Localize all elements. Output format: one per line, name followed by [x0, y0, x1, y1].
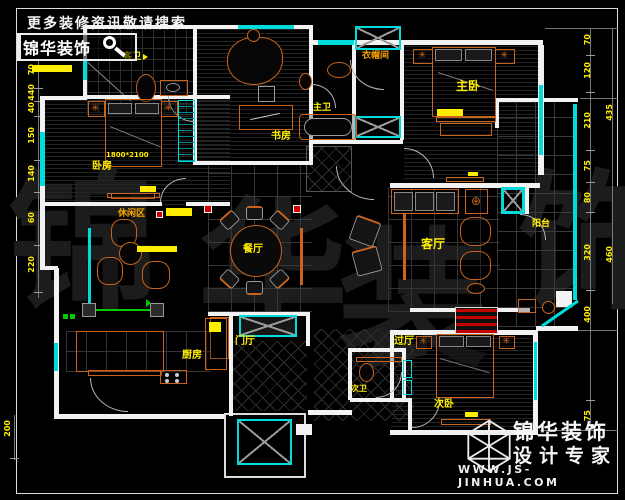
search-divider: [19, 35, 21, 59]
bathtub-basin: [304, 118, 352, 136]
wiring-arrow: [146, 299, 151, 307]
console-table: [111, 193, 155, 199]
toilet: [327, 62, 351, 78]
foyer-floor: [233, 341, 307, 411]
partition-glass: [88, 228, 91, 310]
dimension-value: 75: [583, 160, 592, 171]
balcony-glazing: [573, 104, 577, 300]
highlight-bar: [137, 246, 177, 252]
highlight-bar: [437, 109, 463, 116]
elevator-door: [296, 424, 312, 435]
sofa-cushion: [436, 192, 455, 211]
extension-line: [580, 98, 618, 99]
bed-bench: [436, 117, 496, 122]
dimension-value: 70: [27, 64, 36, 75]
dresser: [440, 123, 492, 136]
lamp-icon: ✳: [502, 337, 510, 347]
bedroom-wardrobe: [178, 100, 195, 162]
lamp-icon: ✳: [419, 337, 427, 347]
sofa-cushion: [415, 192, 434, 211]
column-marker: [293, 205, 301, 213]
lower-counter: [88, 370, 162, 376]
room-label-hall: 过厅: [394, 337, 414, 347]
room-label-balcony: 阳台: [532, 219, 550, 229]
window: [54, 343, 58, 371]
search-box[interactable]: 锦华装饰: [17, 33, 137, 61]
column-box: [501, 187, 525, 214]
pillow: [108, 103, 132, 114]
floor-lamp: [467, 283, 485, 294]
dimension-line: [590, 28, 591, 430]
burner-dots: [165, 373, 169, 377]
wall: [40, 206, 45, 268]
wall: [54, 414, 224, 419]
wall: [40, 100, 45, 132]
sofa-cushion: [394, 192, 413, 211]
dimension-line: [38, 60, 39, 298]
window: [83, 59, 87, 80]
radiator-unit: [455, 307, 498, 334]
column-marker: [204, 205, 212, 213]
bed-size-annotation: 1800*2100: [106, 150, 149, 160]
wiring-mark: [70, 314, 75, 319]
dining-chair: [246, 206, 263, 220]
dimension-value: 120: [583, 62, 592, 79]
label-arrow-icon: [143, 54, 148, 60]
dimension-value: 220: [27, 256, 36, 273]
wiring-mark: [63, 314, 68, 319]
washer: [403, 360, 412, 378]
headboard: [466, 336, 491, 347]
search-icon[interactable]: [103, 36, 116, 49]
armchair: [97, 257, 123, 285]
dimension-total: 460: [605, 246, 614, 263]
desk: [239, 105, 293, 130]
headboard: [435, 49, 462, 61]
lamp-icon: ✳: [91, 104, 99, 114]
armchair: [142, 261, 170, 289]
lamp-icon: ✳: [500, 51, 508, 61]
fridge-highlight: [209, 322, 221, 332]
room-label-foyer: 门厅: [235, 337, 255, 347]
wiring-line: [96, 309, 154, 311]
shower-box: [403, 380, 412, 395]
dim-tick: [10, 458, 19, 459]
shelf-decor: [468, 172, 478, 176]
dim-tick: [586, 290, 595, 291]
plant-pot: [542, 301, 555, 314]
piano-stool: [247, 29, 260, 42]
dimension-total: 435: [605, 104, 614, 121]
wash-basin: [518, 299, 536, 313]
window: [40, 132, 45, 186]
bath-counter: [356, 357, 402, 362]
room-label-leisure: 休闲区: [118, 209, 145, 219]
cad-floorplan-canvas: 锦 华 装 饰: [0, 0, 625, 500]
highlight-bar: [166, 208, 192, 216]
room-label-second-bedroom: 次卧: [434, 400, 454, 410]
dimension-line: [14, 415, 15, 460]
toilet: [359, 363, 374, 382]
dimension-value: 200: [3, 420, 12, 437]
room-label-bedroom: 卧房: [92, 162, 112, 172]
dimension-value: 70: [583, 34, 592, 45]
lamp-icon: ✳: [164, 104, 172, 114]
room-label-master-bath: 主卫: [313, 103, 331, 113]
lamp-icon: ⊕: [471, 196, 481, 206]
toilet: [136, 74, 156, 102]
entry-shaft: [239, 315, 297, 337]
dimension-value: 140: [27, 165, 36, 182]
dim-tick: [586, 92, 595, 93]
dim-tick: [34, 292, 43, 293]
highlight-bar: [465, 412, 478, 417]
gas-stove: [160, 370, 187, 384]
cloakroom-wardrobe: [355, 116, 401, 138]
brand-website: WWW.JS-JINHUA.COM: [458, 463, 625, 489]
room-label-dining: 餐厅: [243, 245, 263, 255]
extension-line: [545, 28, 618, 29]
dimension-value: 210: [583, 112, 592, 129]
dim-tick: [586, 182, 595, 183]
chair: [258, 86, 275, 102]
highlight-bar: [32, 65, 72, 72]
column-marker: [156, 211, 163, 218]
kitchen-counter: [76, 331, 164, 372]
wall: [348, 348, 406, 352]
room-label-second-bath: 次卫: [351, 384, 367, 394]
room-label-master-bedroom: 主卧: [456, 81, 480, 91]
window: [539, 85, 543, 155]
wall: [40, 96, 87, 100]
partition-screen: [300, 228, 303, 285]
wall: [495, 98, 578, 102]
lamp-icon: ✳: [418, 51, 426, 61]
window: [238, 25, 294, 29]
cloakroom-wardrobe: [355, 26, 401, 50]
window: [534, 342, 537, 400]
wall: [197, 161, 311, 165]
dim-tick: [586, 212, 595, 213]
dimension-value: 150: [27, 127, 36, 144]
headboard: [439, 336, 464, 347]
dimension-value: 400: [583, 306, 592, 323]
dimension-value: 80: [583, 192, 592, 203]
wall: [229, 316, 233, 416]
banner-slogan: 更多装修资讯敬请搜索: [27, 13, 187, 33]
partition-screen: [403, 213, 406, 280]
dim-tick: [586, 400, 595, 401]
wall: [40, 202, 162, 206]
dim-tick: [586, 55, 595, 56]
sink: [166, 83, 180, 92]
dim-tick: [586, 150, 595, 151]
wall: [311, 140, 403, 144]
junction-box: [150, 303, 164, 317]
extension-line: [578, 330, 618, 331]
dimension-value: 440: [27, 84, 36, 101]
dimension-value: 40: [27, 102, 36, 113]
room-label-kitchen: 厨房: [182, 351, 202, 361]
search-input-text[interactable]: 锦华装饰: [19, 35, 97, 59]
armchair: [460, 217, 491, 246]
headboard: [465, 49, 492, 61]
window: [318, 40, 354, 45]
elevator-shaft: [237, 419, 292, 465]
room-label-living: 客厅: [421, 239, 445, 249]
sink: [299, 73, 312, 90]
room-label-cloakroom: 衣帽间: [362, 51, 389, 61]
junction-box: [82, 303, 96, 317]
room-label-study: 书房: [271, 132, 291, 142]
wall: [306, 316, 310, 346]
pillow: [135, 103, 159, 114]
dining-chair: [246, 281, 263, 295]
dimension-value: 320: [583, 244, 592, 261]
armchair: [460, 251, 491, 280]
highlight-bar: [140, 186, 156, 192]
wall: [308, 410, 352, 415]
dimension-value: 60: [27, 212, 36, 223]
wall-shelf: [446, 177, 484, 182]
